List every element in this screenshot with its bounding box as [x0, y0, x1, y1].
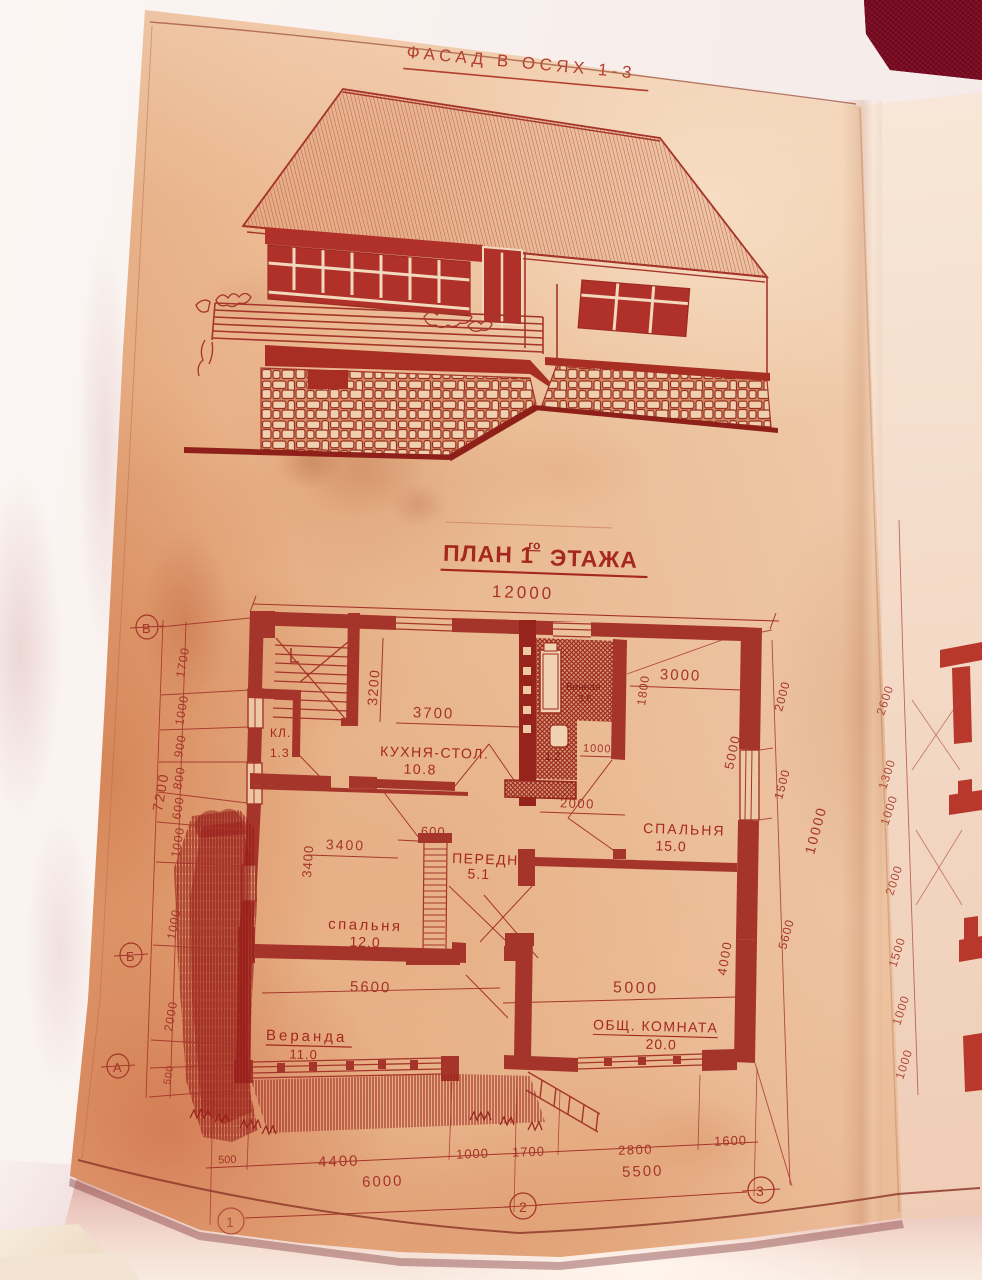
svg-text:2: 2	[519, 1199, 527, 1215]
svg-text:В: В	[142, 621, 151, 636]
svg-text:1.3: 1.3	[270, 746, 290, 760]
svg-text:1000: 1000	[893, 1047, 916, 1081]
svg-text:2000: 2000	[883, 863, 906, 897]
svg-text:4000: 4000	[714, 940, 735, 977]
svg-text:3400: 3400	[326, 836, 366, 853]
svg-text:ФАСАД В ОСЯХ 1-3: ФАСАД В ОСЯХ 1-3	[406, 43, 637, 83]
svg-text:10.8: 10.8	[403, 761, 437, 778]
svg-text:ПЛАН 1: ПЛАН 1	[443, 540, 535, 568]
svg-text:1600: 1600	[714, 1133, 747, 1149]
svg-text:7200: 7200	[149, 771, 172, 812]
svg-text:Ванная: Ванная	[566, 682, 600, 693]
svg-text:Б: Б	[126, 949, 135, 964]
svg-text:20.0: 20.0	[645, 1036, 677, 1053]
svg-text:3: 3	[756, 1183, 764, 1199]
svg-text:КУХНЯ-СТОЛ.: КУХНЯ-СТОЛ.	[380, 743, 490, 762]
svg-text:600: 600	[169, 795, 187, 820]
svg-text:1000: 1000	[172, 694, 191, 727]
svg-text:ОБЩ. КОМНАТА: ОБЩ. КОМНАТА	[593, 1016, 719, 1035]
svg-text:2000: 2000	[560, 795, 595, 811]
svg-text:2600: 2600	[874, 683, 897, 717]
svg-text:3000: 3000	[660, 666, 702, 684]
svg-text:1300: 1300	[876, 757, 899, 791]
svg-text:500: 500	[218, 1154, 237, 1167]
svg-text:11.0: 11.0	[289, 1047, 318, 1063]
svg-text:1700: 1700	[512, 1144, 545, 1160]
svg-text:5600: 5600	[775, 917, 796, 950]
svg-text:2800: 2800	[618, 1142, 653, 1158]
svg-text:1000: 1000	[456, 1146, 489, 1162]
svg-text:800: 800	[170, 765, 188, 790]
svg-text:А: А	[113, 1060, 122, 1075]
svg-text:15.0: 15.0	[655, 837, 687, 854]
svg-text:3400: 3400	[299, 844, 316, 878]
svg-text:1800: 1800	[634, 674, 652, 706]
svg-text:5500: 5500	[622, 1162, 664, 1180]
svg-text:1500: 1500	[771, 767, 792, 800]
svg-text:2000: 2000	[161, 1000, 180, 1033]
svg-text:6000: 6000	[362, 1172, 404, 1190]
svg-text:5000: 5000	[613, 979, 659, 997]
svg-text:3700: 3700	[413, 704, 455, 722]
svg-text:ЭТАЖА: ЭТАЖА	[550, 545, 639, 573]
svg-text:1700: 1700	[173, 646, 192, 679]
svg-text:3200: 3200	[364, 668, 383, 706]
svg-text:5.1: 5.1	[467, 865, 490, 882]
svg-text:5600: 5600	[350, 978, 392, 996]
svg-text:500: 500	[162, 1064, 176, 1085]
svg-text:КЛ.: КЛ.	[270, 726, 291, 740]
svg-text:Веранда: Веранда	[266, 1027, 348, 1046]
svg-text:СПАЛЬНЯ: СПАЛЬНЯ	[643, 820, 726, 839]
svg-text:1000: 1000	[583, 742, 612, 755]
svg-text:12000: 12000	[492, 582, 555, 603]
svg-text:спальня: спальня	[328, 916, 403, 936]
svg-text:1000: 1000	[878, 793, 901, 827]
svg-text:1: 1	[226, 1214, 234, 1230]
svg-text:1.2: 1.2	[545, 751, 560, 763]
svg-text:10000: 10000	[801, 804, 829, 855]
svg-text:го: го	[528, 538, 541, 552]
svg-text:600: 600	[421, 824, 446, 840]
svg-text:900: 900	[171, 733, 189, 758]
svg-text:3.6: 3.6	[578, 694, 592, 705]
